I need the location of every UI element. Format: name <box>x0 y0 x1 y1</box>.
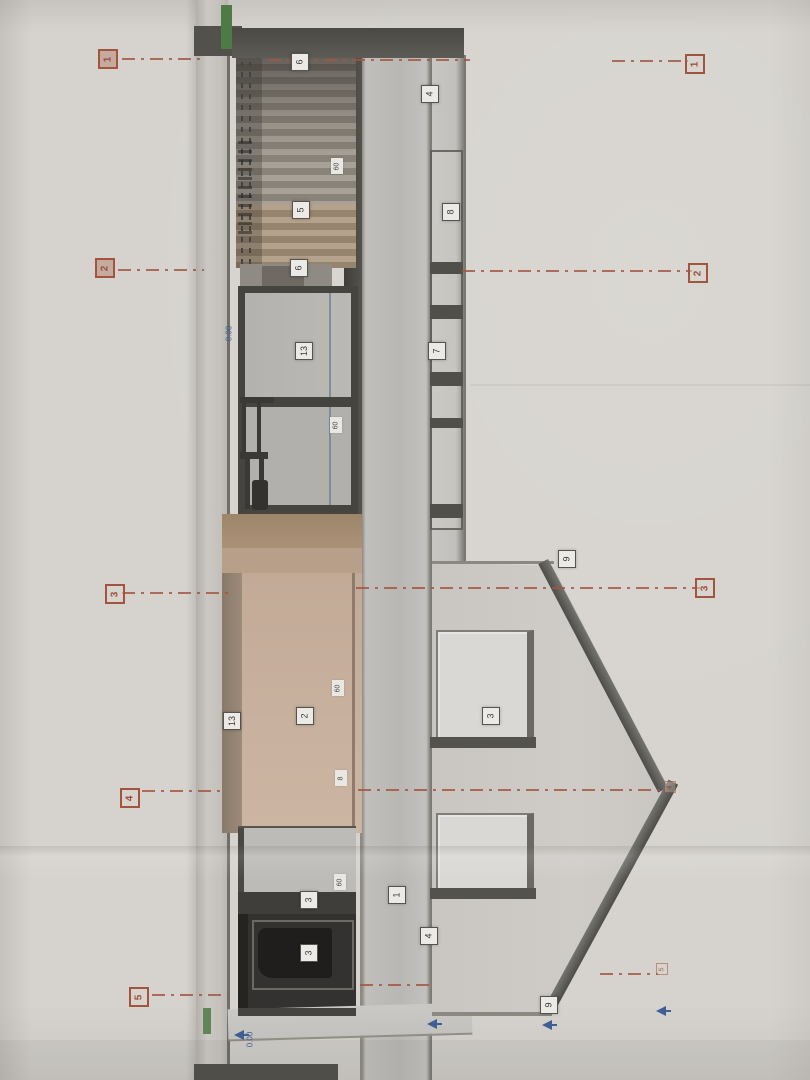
level-annotation: 0.00 <box>245 1022 255 1056</box>
axis-marker-left-1: 1 <box>98 49 118 69</box>
gable-window-upper <box>436 630 534 746</box>
railing-post <box>430 418 463 428</box>
axis-marker-right-4: 4 <box>664 781 676 793</box>
axis-marker-right-2: 2 <box>688 263 708 283</box>
level-arrow-icon <box>234 1030 244 1040</box>
dimension-tag-60: 60 <box>334 874 346 890</box>
component-label-6: 6 <box>290 259 308 277</box>
axis-marker-right-5: 5 <box>656 963 668 975</box>
axis-line-3 <box>122 592 230 594</box>
component-label-13: 13 <box>295 342 313 360</box>
level-arrow-stem <box>437 1023 442 1025</box>
level-arrow-stem <box>244 1034 249 1036</box>
doorway-silhouette <box>258 928 332 978</box>
railing-post <box>430 305 463 319</box>
dimension-tag-60: 60 <box>331 158 343 174</box>
axis-line-2 <box>118 269 204 271</box>
railing-post <box>430 372 463 386</box>
component-label-7: 7 <box>428 342 446 360</box>
insulation-green-bar-top <box>221 5 232 49</box>
axis-marker-right-1: 1 <box>685 54 705 74</box>
lower-dark-band <box>238 892 356 914</box>
paper-crease-horizontal <box>470 384 810 386</box>
railing-post <box>430 262 463 274</box>
blinds-rungs <box>238 138 252 234</box>
axis-marker-left-3: 3 <box>105 584 125 604</box>
furniture-silhouette <box>242 403 246 457</box>
level-arrow-icon <box>656 1006 666 1016</box>
axis-marker-left-5: 5 <box>129 987 149 1007</box>
axis-line-2 <box>462 270 692 272</box>
component-label-8: 8 <box>442 203 460 221</box>
dimension-tag-60: 60 <box>330 417 342 433</box>
axis-marker-left-2: 2 <box>95 258 115 278</box>
furniture-silhouette <box>240 452 268 459</box>
furniture-silhouette <box>257 403 261 457</box>
gable-face <box>432 556 670 1018</box>
gable-window-lower-sill <box>430 888 536 899</box>
axis-line-3 <box>356 587 700 589</box>
component-label-4: 4 <box>420 927 438 945</box>
component-label-5: 5 <box>292 201 310 219</box>
brown-wall-panel <box>222 573 362 833</box>
section-wall-shadow <box>186 0 196 1080</box>
wall-band-main <box>360 28 432 1080</box>
photographed-architectural-drawing: 12345123456458613793213134396060608600.0… <box>0 0 810 1080</box>
roof-slab-top-band <box>232 28 464 58</box>
gable-bottom-edge <box>432 1012 552 1016</box>
component-label-13: 13 <box>223 712 241 730</box>
axis-line-5 <box>360 984 430 986</box>
component-label-9: 9 <box>558 550 576 568</box>
component-label-4: 4 <box>421 85 439 103</box>
component-label-9: 9 <box>540 996 558 1014</box>
gable-window-upper-sill <box>430 737 536 748</box>
axis-line-1 <box>122 58 206 60</box>
level-arrow-icon <box>427 1019 437 1029</box>
furniture-silhouette <box>252 480 268 510</box>
axis-line-1 <box>612 60 688 62</box>
gable-top-edge <box>432 561 554 564</box>
axis-marker-right-3: 3 <box>695 578 715 598</box>
level-arrow-icon <box>542 1020 552 1030</box>
level-annotation: 0.00 <box>224 316 234 350</box>
component-label-6: 6 <box>291 53 309 71</box>
dimension-tag-60: 60 <box>332 680 344 696</box>
level-arrow-stem <box>666 1010 671 1012</box>
level-arrow-stem <box>552 1024 557 1026</box>
axis-marker-left-4: 4 <box>120 788 140 808</box>
component-label-3: 3 <box>482 707 500 725</box>
component-label-2: 2 <box>296 707 314 725</box>
dimension-tag-8: 8 <box>335 770 347 786</box>
window-mullion <box>329 293 331 397</box>
component-label-3: 3 <box>300 891 318 909</box>
axis-line-5 <box>600 973 658 975</box>
brown-wall-left-strip <box>222 573 242 833</box>
component-label-1: 1 <box>388 886 406 904</box>
bottom-dark-strip <box>194 1064 338 1080</box>
floor-slab-brown <box>222 514 362 548</box>
doorway-left-jamb <box>238 914 248 1010</box>
building-base-line <box>238 1008 356 1016</box>
axis-line-4 <box>358 789 668 791</box>
floor-slab-brown-light <box>222 548 362 573</box>
insulation-green-bar-bottom <box>203 1008 211 1034</box>
furniture-silhouette <box>245 459 250 509</box>
axis-line-5 <box>152 994 228 996</box>
axis-line-4 <box>142 790 226 792</box>
gable-window-lower <box>436 813 534 897</box>
component-label-3: 3 <box>300 944 318 962</box>
brown-wall-edge-line <box>352 573 355 833</box>
railing-post <box>430 504 463 518</box>
